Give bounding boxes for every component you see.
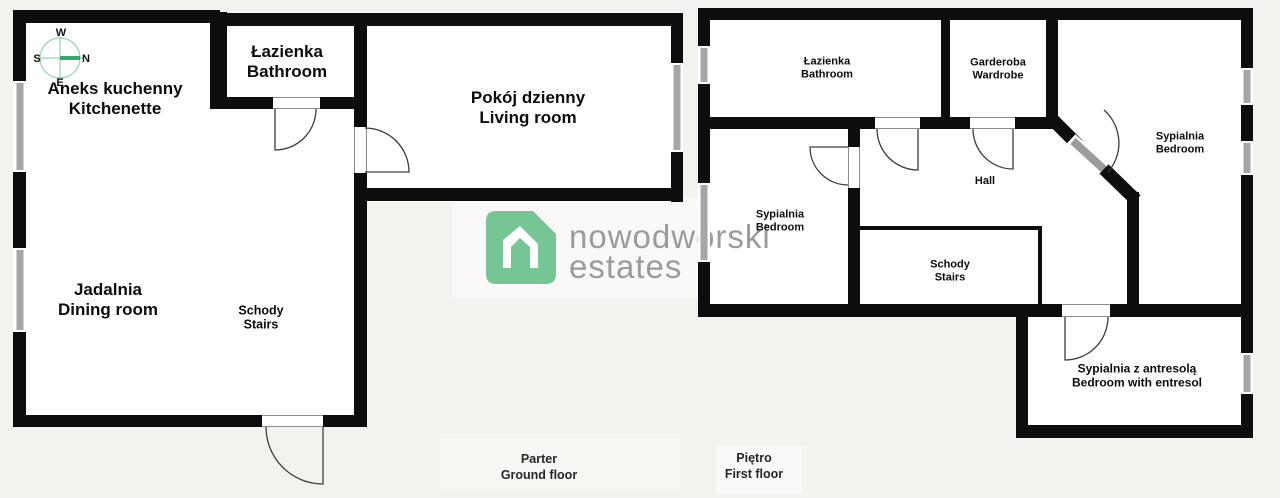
ground-floor-caption: Parter Ground floor bbox=[501, 451, 577, 483]
room-label-stairs-first: Schody Stairs bbox=[930, 259, 970, 284]
first-floor-caption: Piętro First floor bbox=[725, 450, 783, 482]
room-label-wardrobe: Garderoba Wardrobe bbox=[970, 57, 1026, 82]
room-label-kitchenette: Aneks kuchenny Kitchenette bbox=[47, 79, 182, 119]
floorplan-canvas: nowodworski estates W S N E bbox=[0, 0, 1280, 498]
door-swing-arc bbox=[1104, 110, 1119, 172]
diagonal-door-leaf bbox=[1073, 141, 1108, 173]
door-swing-arc bbox=[973, 129, 1013, 169]
door-swing-arc bbox=[275, 109, 316, 150]
door-swing-arc bbox=[1065, 317, 1108, 360]
room-label-dining-room: Jadalnia Dining room bbox=[58, 280, 158, 320]
room-label-hall: Hall bbox=[975, 175, 995, 188]
room-label-bedroom-left: Sypialnia Bedroom bbox=[756, 209, 804, 234]
door-swing-arc bbox=[810, 147, 848, 185]
room-label-bathroom-ground: Łazienka Bathroom bbox=[247, 42, 327, 82]
room-label-stairs-ground: Schody Stairs bbox=[238, 305, 283, 332]
door-swings-and-diagonal-walls bbox=[0, 0, 1280, 498]
room-label-bedroom-entresol: Sypialnia z antresolą Bedroom with entre… bbox=[1072, 363, 1202, 390]
door-swing-arc bbox=[365, 128, 409, 172]
door-swing-arc bbox=[266, 427, 323, 484]
room-label-bathroom-first: Łazienka Bathroom bbox=[801, 56, 853, 81]
room-label-bedroom-right: Sypialnia Bedroom bbox=[1156, 131, 1204, 156]
diagonal-wall bbox=[1104, 169, 1136, 200]
room-label-living-room: Pokój dzienny Living room bbox=[471, 88, 585, 128]
door-swing-arc bbox=[877, 129, 918, 170]
